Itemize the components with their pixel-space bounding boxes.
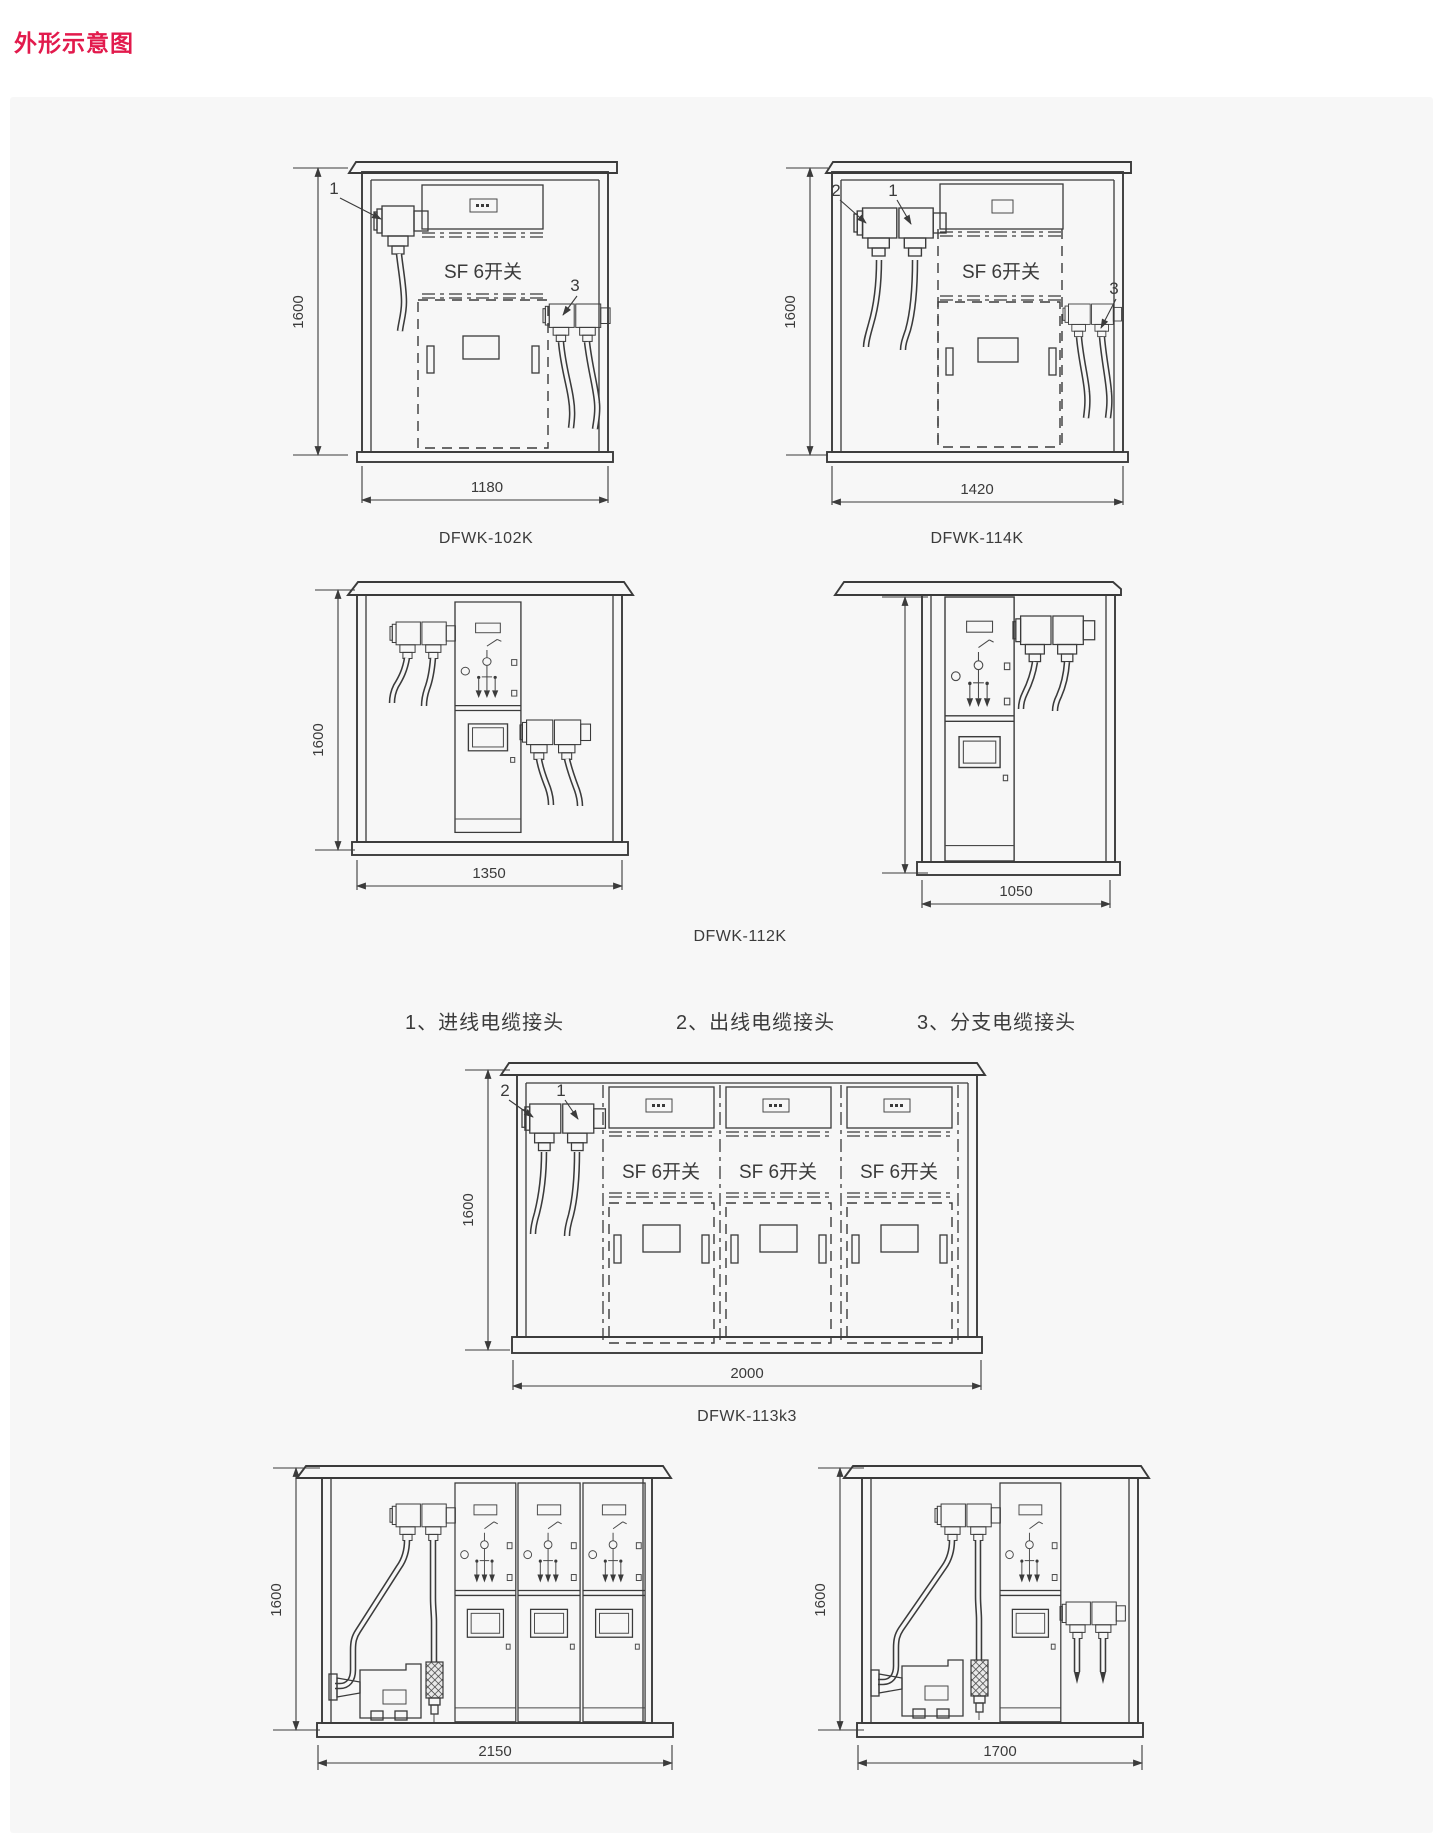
height-dimension: 1600 bbox=[310, 590, 355, 850]
height-dimension: 1600 bbox=[812, 1468, 864, 1730]
switch-column bbox=[455, 602, 521, 832]
callout-number: 1 bbox=[556, 1081, 565, 1100]
cabinet-door bbox=[418, 300, 548, 448]
width-value: 1180 bbox=[471, 479, 503, 496]
height-dimension: 1600 bbox=[460, 1070, 510, 1350]
callout-number: 2 bbox=[831, 181, 840, 200]
branch-cable-connectors bbox=[520, 720, 591, 759]
drawing-canvas: SF 6开关 SF 6开关 bbox=[0, 0, 1443, 1833]
callout-1: 1 bbox=[556, 1081, 578, 1119]
diagram-dfwk-112k-side: 1050 bbox=[835, 582, 1121, 908]
branch-cable-connector bbox=[543, 304, 610, 341]
callout-number: 3 bbox=[1109, 279, 1118, 298]
cabinet-door bbox=[938, 302, 1060, 447]
sf6-switch-bay-3 bbox=[847, 1087, 952, 1343]
width-value: 1700 bbox=[983, 1743, 1016, 1760]
cabinet-base bbox=[857, 1723, 1143, 1737]
cable-hatch-section bbox=[971, 1660, 988, 1696]
model-label: DFWK-102K bbox=[439, 530, 533, 547]
diagram-dfwk-112k-front: 1600 1350 bbox=[310, 582, 633, 890]
door-window bbox=[463, 336, 499, 359]
width-dimension: 1700 bbox=[858, 1743, 1142, 1770]
roof bbox=[348, 582, 633, 595]
diagram-variant-2150: 1600 2150 bbox=[268, 1466, 673, 1770]
inlet-outlet-cable-connectors bbox=[854, 208, 946, 256]
switch-column bbox=[1000, 1483, 1061, 1722]
cable-hatch-section bbox=[426, 1662, 443, 1698]
callout-2: 2 bbox=[831, 181, 866, 223]
legend-item-outlet: 2、出线电缆接头 bbox=[676, 1006, 835, 1035]
model-label: DFWK-114K bbox=[930, 530, 1023, 547]
branch-cable-connector bbox=[1063, 304, 1121, 337]
width-value: 2150 bbox=[478, 1743, 511, 1760]
page: 外形示意图 bbox=[0, 0, 1443, 1833]
width-dimension: 1420 bbox=[832, 466, 1123, 505]
callout-number: 1 bbox=[888, 181, 897, 200]
cabinet-body bbox=[922, 595, 1115, 862]
legend-item-inlet: 1、进线电缆接头 bbox=[405, 1006, 564, 1035]
width-dimension: 2150 bbox=[318, 1743, 672, 1770]
cable-termination-device bbox=[871, 1660, 963, 1718]
sf6-switch-label: SF 6开关 bbox=[962, 261, 1040, 283]
inlet-cable-connectors bbox=[935, 1504, 1000, 1540]
cabinet-base bbox=[317, 1723, 673, 1737]
callout-number: 3 bbox=[570, 276, 579, 295]
width-dimension: 2000 bbox=[513, 1360, 981, 1390]
cabinet-base bbox=[827, 452, 1128, 462]
height-value: 1600 bbox=[290, 295, 307, 328]
inlet-cable-connector bbox=[374, 206, 428, 254]
door-window bbox=[978, 338, 1018, 362]
roof bbox=[297, 1466, 671, 1478]
cabinet-base bbox=[357, 452, 613, 462]
width-dimension: 1350 bbox=[357, 860, 622, 890]
diagram-variant-1700: 1600 1700 bbox=[812, 1466, 1149, 1770]
height-value: 1600 bbox=[268, 1583, 285, 1616]
height-value: 1600 bbox=[812, 1583, 829, 1616]
height-dimension: 1600 bbox=[290, 168, 348, 455]
roof bbox=[501, 1063, 985, 1075]
legend-item-branch: 3、分支电缆接头 bbox=[917, 1006, 1076, 1035]
width-value: 1350 bbox=[472, 865, 505, 882]
width-dimension: 1180 bbox=[362, 466, 608, 503]
roof bbox=[835, 582, 1121, 595]
height-dimension: 1600 bbox=[782, 168, 828, 455]
callout-number: 2 bbox=[500, 1081, 509, 1100]
height-dimension: 1600 bbox=[268, 1468, 320, 1730]
sf6-switch-label: SF 6开关 bbox=[444, 261, 522, 283]
sf6-switch-panel: SF 6开关 bbox=[938, 184, 1063, 447]
switch-column bbox=[945, 597, 1014, 861]
sf6-switch-bay-1 bbox=[609, 1087, 714, 1343]
width-value: 1050 bbox=[999, 883, 1032, 900]
model-label: DFWK-113k3 bbox=[697, 1408, 797, 1425]
cabinet-base bbox=[352, 842, 628, 855]
sf6-switch-bay-2 bbox=[726, 1087, 831, 1343]
switch-column bbox=[455, 1483, 516, 1722]
cable-termination-device bbox=[329, 1664, 421, 1720]
callout-3: 3 bbox=[563, 276, 580, 315]
callout-number: 1 bbox=[329, 179, 338, 198]
width-dimension: 1050 bbox=[922, 880, 1110, 908]
cabinet-base bbox=[512, 1337, 982, 1353]
height-value: 1600 bbox=[782, 295, 799, 328]
branch-cable-connectors bbox=[1060, 1602, 1125, 1638]
switch-column bbox=[583, 1483, 645, 1722]
sf6-switch-panel: SF 6开关 bbox=[418, 185, 548, 448]
inlet-outlet-cable-connectors bbox=[522, 1104, 605, 1151]
outlet-cable-connectors bbox=[1013, 616, 1095, 662]
width-value: 1420 bbox=[960, 481, 993, 498]
switch-column bbox=[518, 1483, 580, 1722]
cabinet-body bbox=[517, 1075, 977, 1337]
height-value: 1600 bbox=[460, 1193, 477, 1226]
diagram-dfwk-113k3: 2 1 1600 2000 DFWK-113k3 bbox=[460, 1063, 985, 1425]
inlet-cable-connectors bbox=[390, 1504, 455, 1540]
roof bbox=[844, 1466, 1149, 1478]
width-value: 2000 bbox=[730, 1365, 763, 1382]
diagram-dfwk-114k: SF 6开关 2 1 bbox=[782, 162, 1131, 547]
height-value: 1600 bbox=[310, 723, 327, 756]
model-label-dfwk-112k: DFWK-112K bbox=[693, 928, 786, 945]
callout-1: 1 bbox=[329, 179, 381, 219]
cabinet-base bbox=[917, 862, 1120, 875]
diagram-dfwk-102k: SF 6开关 1 3 bbox=[290, 162, 617, 547]
inlet-cable-connectors bbox=[390, 622, 455, 658]
